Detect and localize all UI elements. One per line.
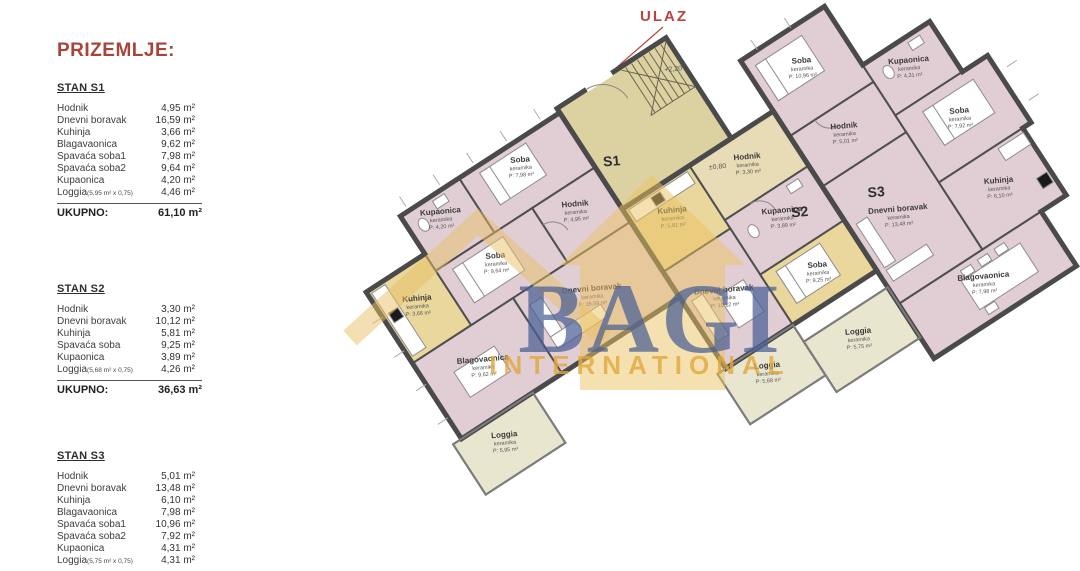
room-label: Soba <box>791 55 812 66</box>
table-row: Loggia(5,68 m² x 0,75) 4,26 m² <box>57 364 195 377</box>
apartment-summary-s2: STAN S2 Hodnik 3,30 m² Dnevni boravak 10… <box>57 283 195 396</box>
table-row: Kuhinja 3,66 m² <box>57 127 195 139</box>
table-row: Kupaonica 4,20 m² <box>57 175 195 187</box>
apartment-name: STAN S2 <box>57 283 195 295</box>
table-row: Hodnik 5,01 m² <box>57 471 195 483</box>
apartment-name: STAN S1 <box>57 82 195 94</box>
table-row: Hodnik 3,30 m² <box>57 304 195 316</box>
table-row: Hodnik 4,95 m² <box>57 103 195 115</box>
table-row: Spavaća soba1 7,98 m² <box>57 151 195 163</box>
room-area-table: Hodnik 4,95 m² Dnevni boravak 16,59 m² K… <box>57 103 195 200</box>
table-row: Kuhinja 5,81 m² <box>57 328 195 340</box>
table-row: Spavaća soba1 10,96 m² <box>57 519 195 531</box>
unit-marker-s3: S3 <box>867 183 886 200</box>
screenshot-root: PRIZEMLJE: STAN S1 Hodnik 4,95 m² Dnevni… <box>0 0 1080 571</box>
page-title: PRIZEMLJE: <box>57 40 175 62</box>
table-row: Dnevni boravak 16,59 m² <box>57 115 195 127</box>
watermark-subtitle: INTERNATIONAL <box>489 350 790 380</box>
table-row: Dnevni boravak 10,12 m² <box>57 316 195 328</box>
apartment-summary-s1: STAN S1 Hodnik 4,95 m² Dnevni boravak 16… <box>57 82 195 219</box>
apartment-summary-s3: STAN S3 Hodnik 5,01 m² Dnevni boravak 13… <box>57 450 195 571</box>
table-row: Kupaonica 3,89 m² <box>57 352 195 364</box>
table-row: Blagavaonica 7,98 m² <box>57 507 195 519</box>
apartment-name: STAN S3 <box>57 450 195 462</box>
table-row: Loggia(5,75 m² x 0,75) 4,31 m² <box>57 555 195 568</box>
total-row: UKUPNO: 61,10 m² <box>57 203 202 219</box>
room-label: Soba <box>949 105 970 116</box>
table-row: Spavaća soba 9,25 m² <box>57 340 195 352</box>
room-area-table: Hodnik 3,30 m² Dnevni boravak 10,12 m² K… <box>57 304 195 377</box>
room-label: Soba <box>807 259 828 270</box>
table-row: Spavaća soba2 7,92 m² <box>57 531 195 543</box>
entrance-label: ULAZ <box>640 8 688 25</box>
table-row: Loggia(5,95 m² x 0,75) 4,46 m² <box>57 187 195 200</box>
unit-marker-s1: S1 <box>602 152 621 169</box>
table-row: Blagavaonica 9,62 m² <box>57 139 195 151</box>
table-row: Kuhinja 6,10 m² <box>57 495 195 507</box>
unit-marker-s2: S2 <box>790 203 809 220</box>
room-label: Soba <box>510 154 531 165</box>
total-row: UKUPNO: 36,63 m² <box>57 380 202 396</box>
table-row: Kupaonica 4,31 m² <box>57 543 195 555</box>
table-row: Spavaća soba2 9,64 m² <box>57 163 195 175</box>
room-area-table: Hodnik 5,01 m² Dnevni boravak 13,48 m² K… <box>57 471 195 568</box>
table-row: Dnevni boravak 13,48 m² <box>57 483 195 495</box>
